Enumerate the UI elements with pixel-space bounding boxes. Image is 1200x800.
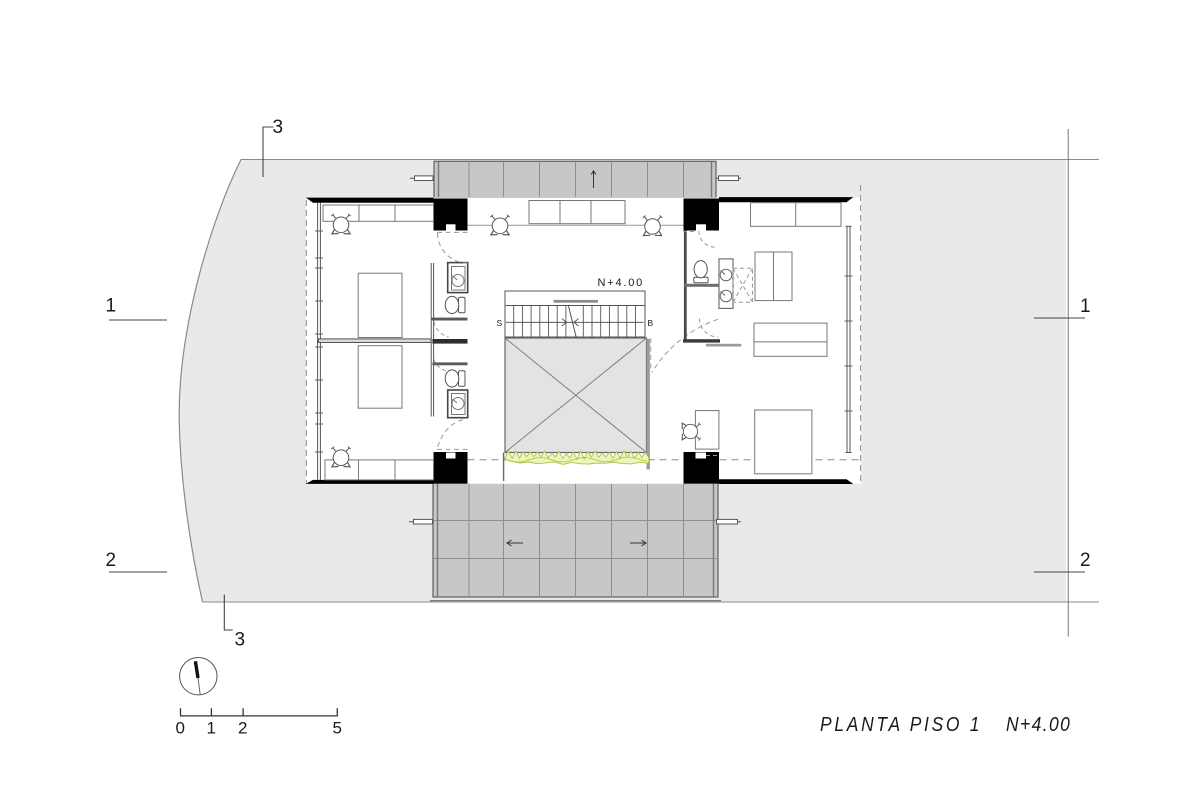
svg-text:B: B xyxy=(648,318,654,328)
svg-text:3: 3 xyxy=(235,630,246,651)
svg-text:1: 1 xyxy=(106,296,117,317)
svg-text:S: S xyxy=(497,318,503,328)
svg-text:1: 1 xyxy=(207,719,216,738)
svg-text:PLANTA PISO 1: PLANTA PISO 1 xyxy=(820,714,982,737)
svg-text:2: 2 xyxy=(106,550,117,571)
svg-text:3: 3 xyxy=(273,117,284,138)
svg-text:2: 2 xyxy=(1080,550,1091,571)
svg-text:N+4.00: N+4.00 xyxy=(1006,714,1071,737)
svg-text:0: 0 xyxy=(176,719,185,738)
svg-text:N+4.00: N+4.00 xyxy=(598,277,645,289)
svg-text:2: 2 xyxy=(238,719,247,738)
svg-text:5: 5 xyxy=(333,719,342,738)
svg-text:1: 1 xyxy=(1080,296,1091,317)
